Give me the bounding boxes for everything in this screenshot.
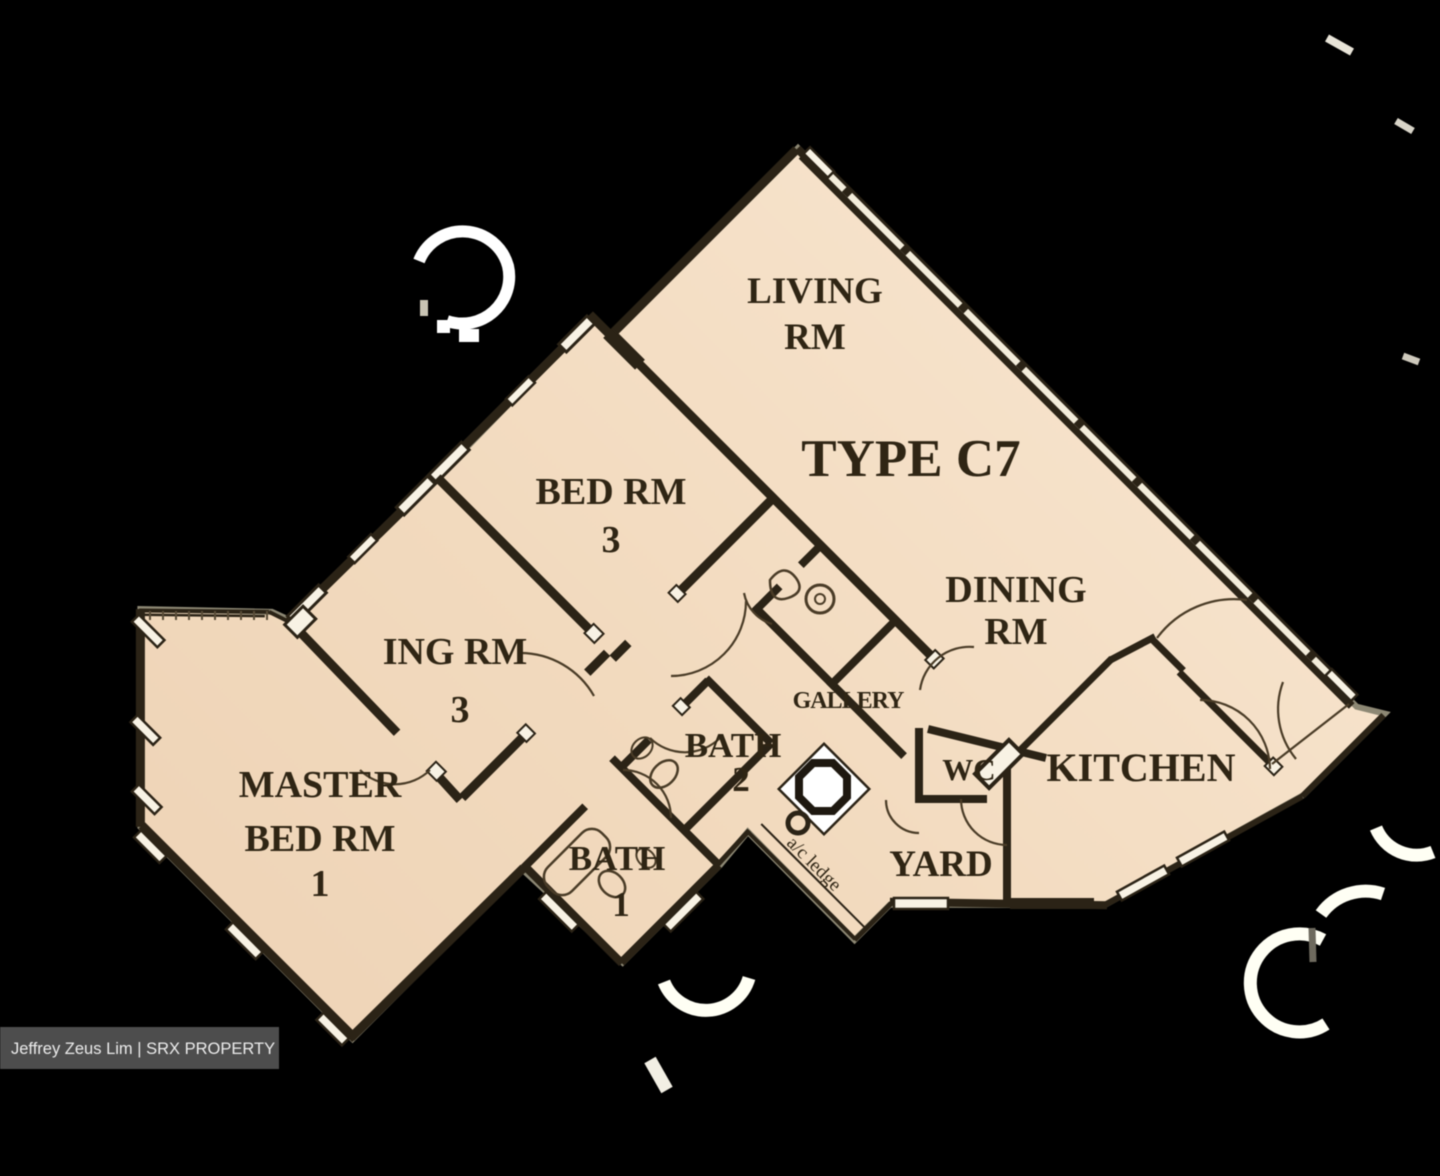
svg-text:GALLERY: GALLERY [793,688,905,714]
svg-text:3: 3 [602,519,621,561]
svg-text:BED RM: BED RM [536,471,687,513]
svg-text:1: 1 [612,885,630,924]
svg-text:RM: RM [984,611,1047,653]
svg-text:YARD: YARD [889,844,992,885]
svg-text:BATH: BATH [569,839,666,878]
svg-text:KITCHEN: KITCHEN [1047,745,1236,790]
svg-text:MASTER: MASTER [239,764,402,806]
svg-text:TYPE C7: TYPE C7 [801,430,1020,488]
svg-text:ING RM: ING RM [383,631,528,673]
svg-text:1: 1 [311,863,330,905]
svg-text:3: 3 [451,689,470,731]
svg-text:BED RM: BED RM [245,818,396,860]
svg-text:2: 2 [732,760,750,799]
svg-text:Jeffrey Zeus Lim | SRX PROPERT: Jeffrey Zeus Lim | SRX PROPERTY [11,1040,275,1058]
svg-text:LIVING: LIVING [747,271,883,312]
svg-text:DINING: DINING [945,569,1086,611]
svg-text:RM: RM [784,317,846,358]
svg-text:WC: WC [942,752,995,787]
